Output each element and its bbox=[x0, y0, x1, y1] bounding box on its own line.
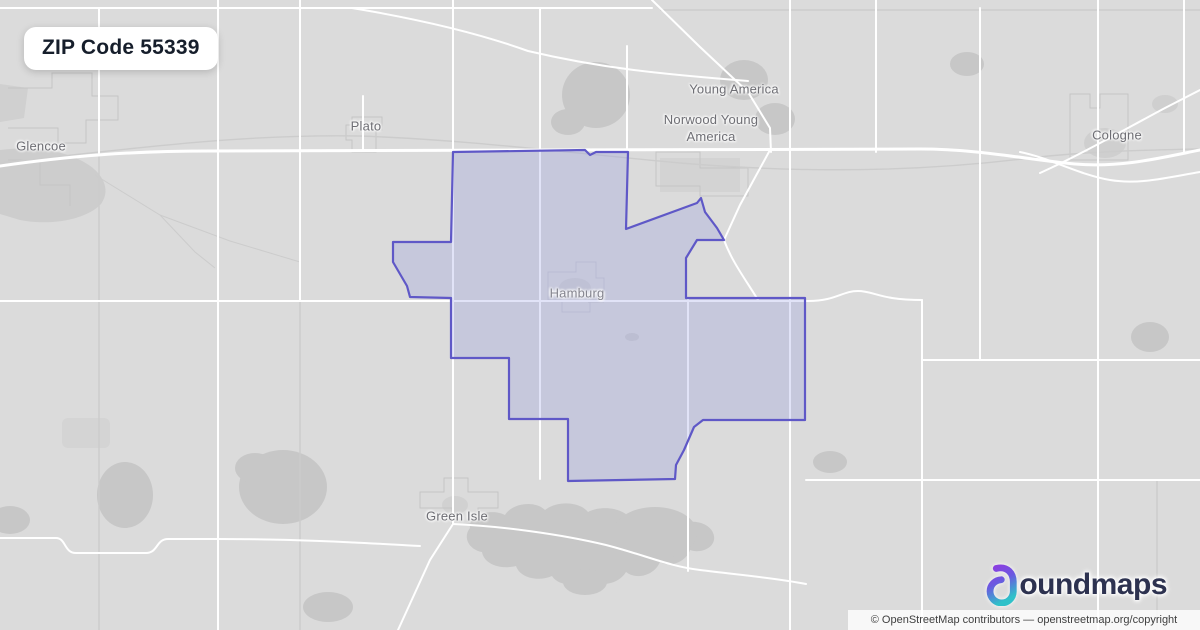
map-label-plato: Plato bbox=[351, 118, 382, 135]
map-share-card: Glencoe Plato Young America Norwood Youn… bbox=[0, 0, 1200, 630]
osm-attribution[interactable]: © OpenStreetMap contributors — openstree… bbox=[848, 610, 1200, 630]
map-canvas[interactable] bbox=[0, 0, 1200, 630]
boundmaps-b-icon bbox=[984, 564, 1018, 606]
map-label-glencoe: Glencoe bbox=[16, 138, 66, 155]
osm-attribution-text[interactable]: © OpenStreetMap contributors — openstree… bbox=[871, 614, 1177, 626]
map-label-young-america: Young America bbox=[689, 81, 779, 98]
boundmaps-wordmark: oundmaps bbox=[1019, 568, 1167, 602]
boundmaps-logo[interactable]: oundmaps bbox=[984, 564, 1167, 606]
map-label-cologne: Cologne bbox=[1092, 127, 1142, 144]
map-label-green-isle: Green Isle bbox=[426, 508, 488, 525]
map-label-norwood-young-america: Norwood Young America bbox=[645, 111, 777, 145]
zip-code-badge: ZIP Code 55339 bbox=[24, 27, 218, 70]
map-label-hamburg: Hamburg bbox=[550, 285, 605, 302]
zip-code-badge-title: ZIP Code 55339 bbox=[42, 36, 200, 59]
